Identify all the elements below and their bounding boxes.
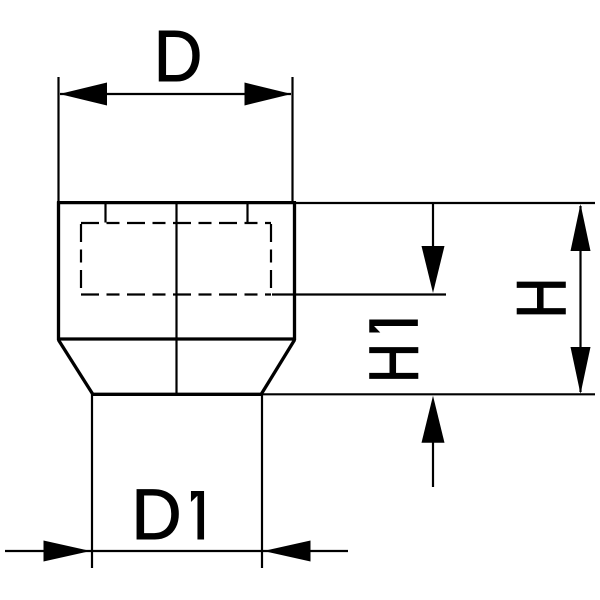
svg-text:H: H [355,343,433,383]
svg-text:D: D [154,16,203,97]
svg-text:H: H [501,277,580,318]
svg-text:D: D [131,474,181,554]
